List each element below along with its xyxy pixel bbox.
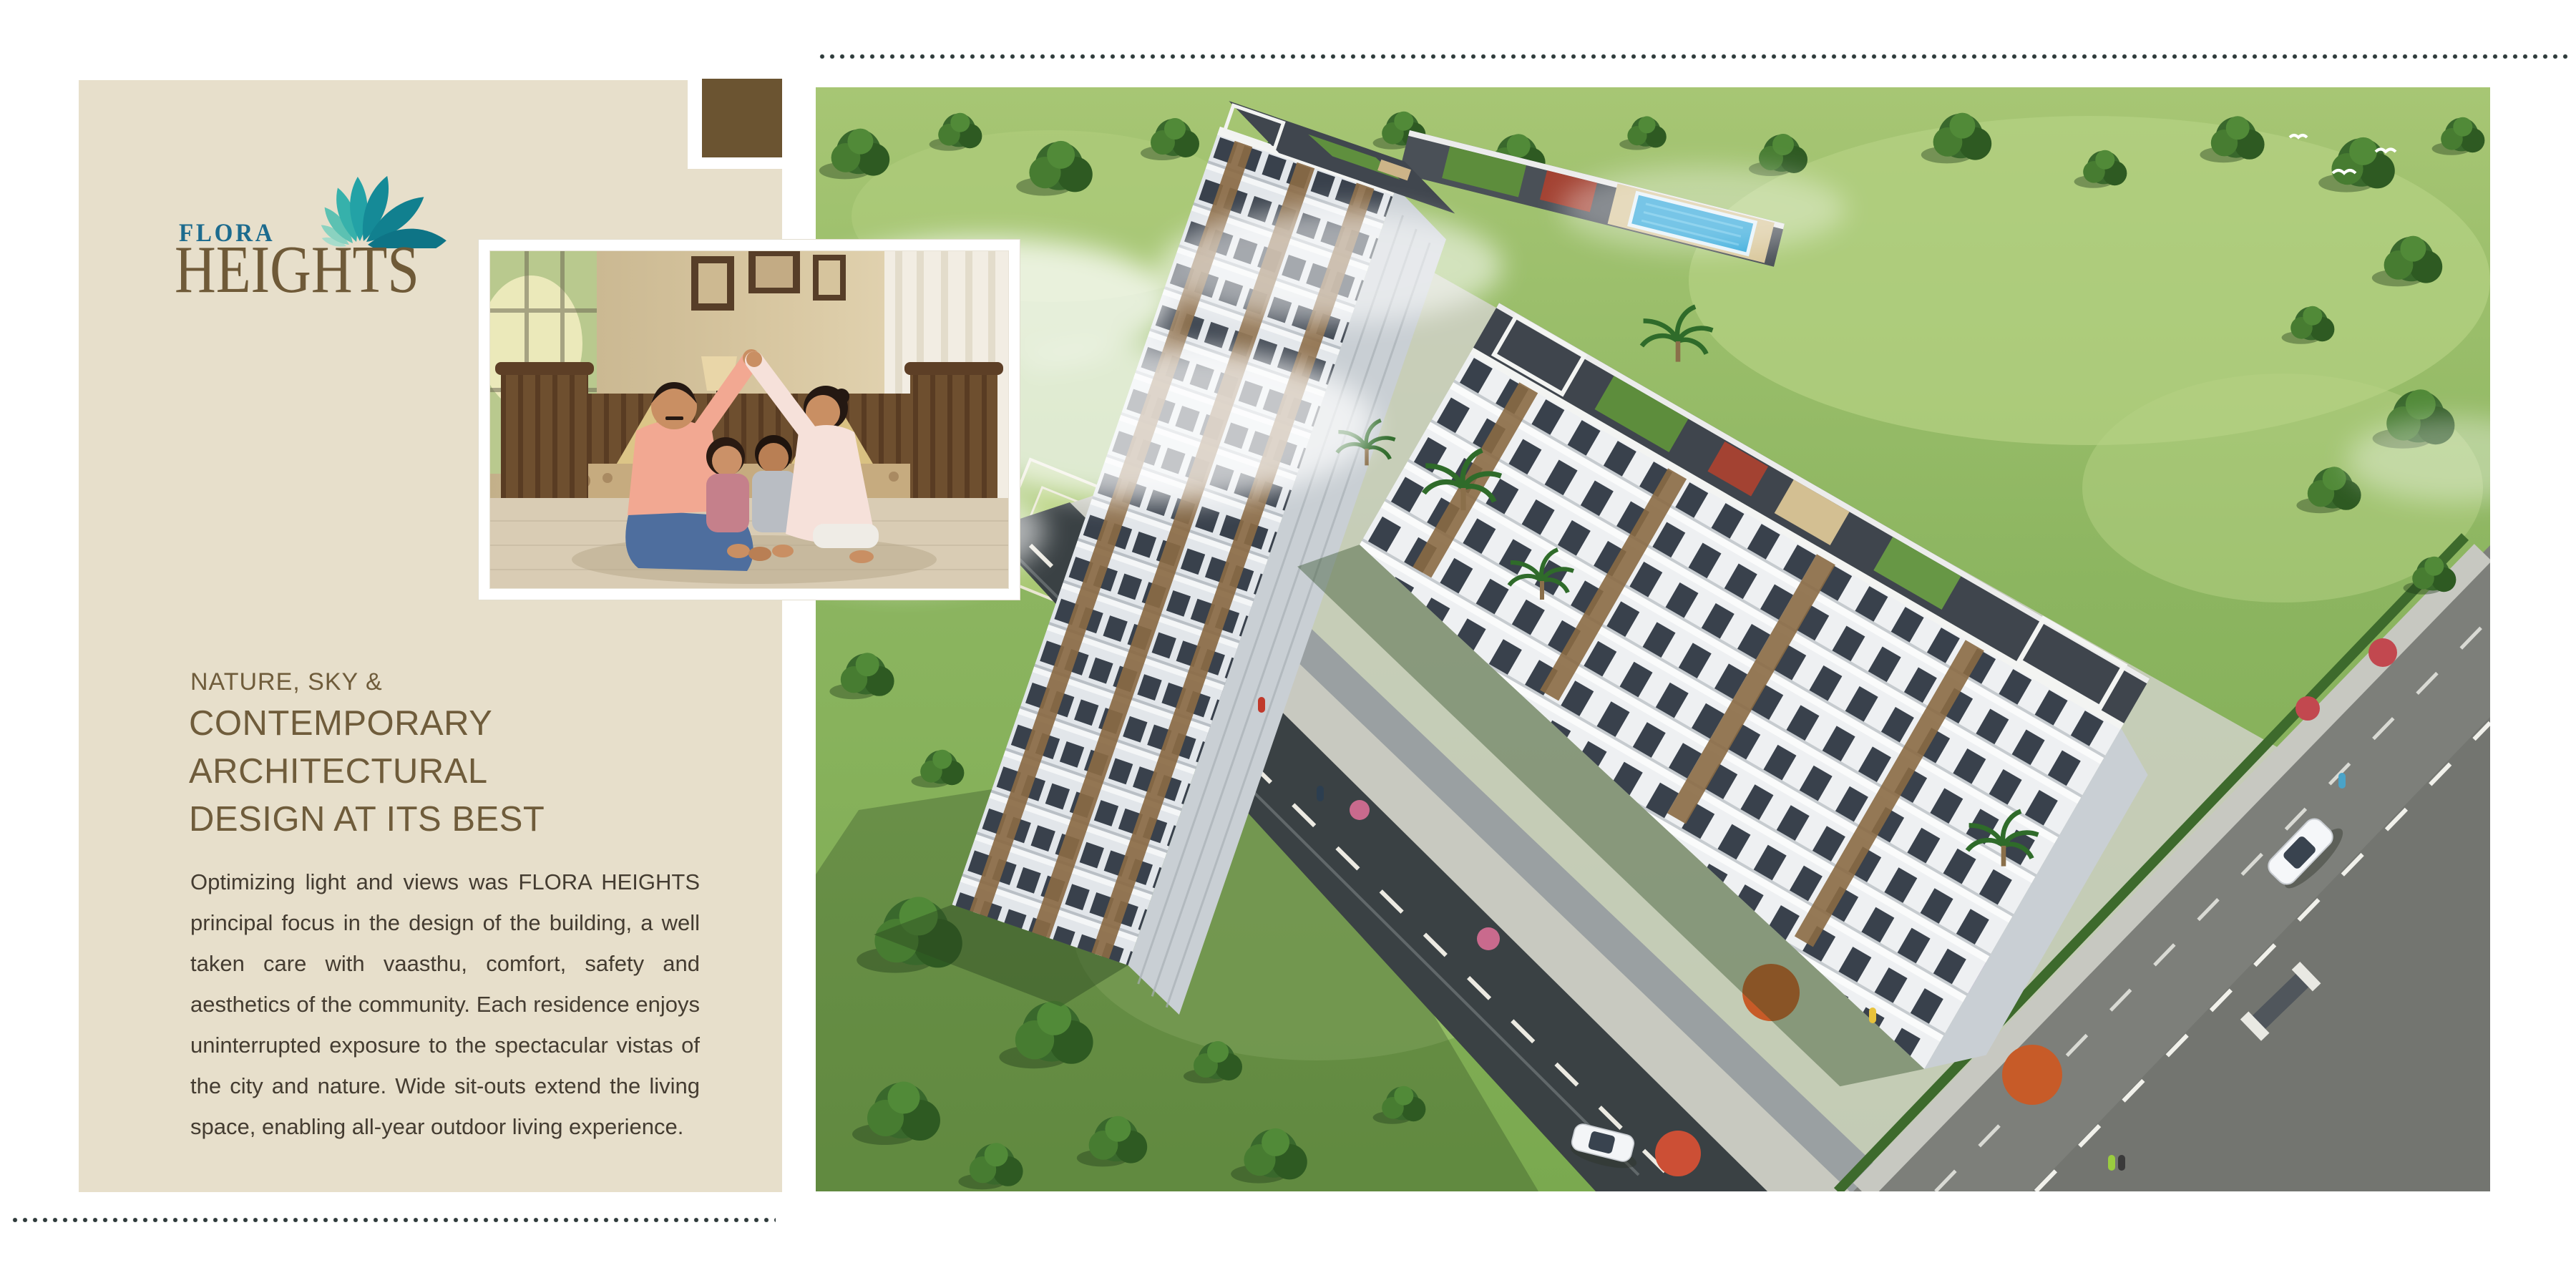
headline-line-1: CONTEMPORARY [189,700,545,748]
headline: CONTEMPORARY ARCHITECTURAL DESIGN AT ITS… [189,700,545,844]
brown-accent-square [702,79,782,157]
aerial-render [816,87,2490,1191]
family-photo [479,240,1020,600]
brochure-page: FLORA HEIGHTS NATURE, SKY & CONTEMPORARY… [0,0,2576,1288]
dotted-divider-bottom [10,1216,776,1222]
headline-line-2: ARCHITECTURAL [189,748,545,796]
body-copy: Optimizing light and views was FLORA HEI… [190,862,700,1147]
dotted-divider-top [817,53,2569,59]
aerial-render-image [816,87,2490,1191]
family-photo-image [489,250,1009,589]
headline-eyebrow: NATURE, SKY & [190,668,383,696]
headline-line-3: DESIGN AT ITS BEST [189,796,545,844]
logo-petals-icon [272,137,451,248]
brand-name-heights: HEIGHTS [175,236,419,303]
